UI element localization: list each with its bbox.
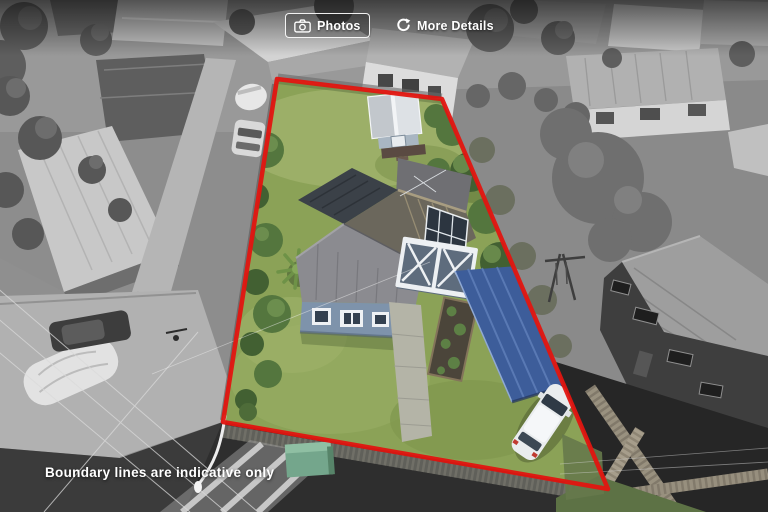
- more-details-button[interactable]: More Details: [388, 13, 502, 38]
- camera-icon: [294, 19, 311, 33]
- parked-sedan: [231, 119, 267, 158]
- more-details-button-label: More Details: [417, 19, 494, 33]
- photos-button-label: Photos: [317, 19, 361, 33]
- refresh-icon: [396, 18, 411, 33]
- photos-button[interactable]: Photos: [285, 13, 370, 38]
- utility-box: [285, 441, 335, 477]
- property-aerial-view: Photos More Details Boundary lines are i…: [0, 0, 768, 512]
- boundary-disclaimer: Boundary lines are indicative only: [45, 465, 274, 480]
- aerial-photo: [0, 0, 768, 512]
